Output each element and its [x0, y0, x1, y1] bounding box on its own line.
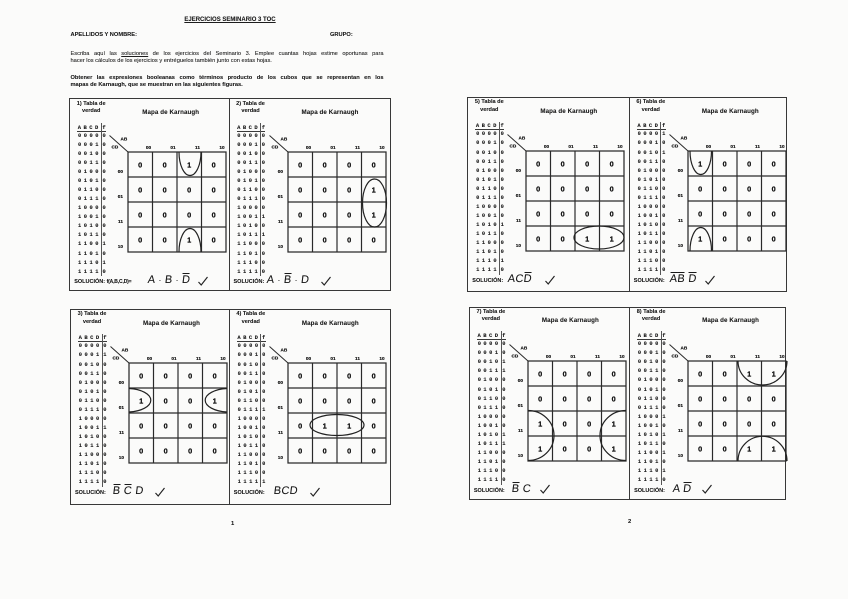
svg-text:01: 01 — [119, 405, 125, 410]
svg-text:11: 11 — [593, 144, 598, 149]
svg-text:01: 01 — [516, 193, 522, 198]
svg-text:11: 11 — [196, 356, 201, 361]
svg-text:0: 0 — [561, 234, 565, 243]
svg-text:10: 10 — [278, 455, 284, 460]
svg-text:0: 0 — [536, 234, 540, 243]
svg-text:00: 00 — [706, 354, 712, 359]
svg-text:0: 0 — [322, 236, 326, 245]
svg-text:0: 0 — [563, 444, 567, 453]
svg-text:1: 1 — [772, 369, 776, 378]
svg-text:0: 0 — [138, 236, 142, 245]
svg-text:0: 0 — [298, 446, 302, 455]
svg-text:0: 0 — [213, 371, 217, 380]
svg-text:CD: CD — [511, 353, 518, 358]
svg-text:1: 1 — [747, 369, 751, 378]
svg-text:0: 0 — [322, 211, 326, 220]
svg-text:0: 0 — [536, 159, 540, 168]
svg-text:01: 01 — [118, 194, 124, 199]
svg-text:11: 11 — [278, 430, 283, 435]
svg-text:0: 0 — [610, 209, 614, 218]
svg-text:10: 10 — [779, 354, 785, 359]
svg-text:00: 00 — [518, 378, 524, 383]
svg-text:01: 01 — [330, 145, 336, 150]
svg-text:AB: AB — [520, 345, 527, 350]
svg-text:0: 0 — [371, 446, 375, 455]
svg-text:11: 11 — [678, 428, 683, 433]
svg-text:01: 01 — [678, 403, 684, 408]
svg-text:CD: CD — [112, 145, 119, 150]
svg-text:0: 0 — [139, 371, 143, 380]
svg-text:1: 1 — [772, 444, 776, 453]
svg-text:0: 0 — [538, 394, 542, 403]
svg-text:0: 0 — [371, 396, 375, 405]
svg-text:0: 0 — [164, 371, 168, 380]
svg-text:00: 00 — [678, 168, 684, 173]
svg-text:00: 00 — [277, 169, 283, 174]
svg-text:10: 10 — [518, 453, 524, 458]
svg-text:0: 0 — [585, 159, 589, 168]
svg-text:0: 0 — [561, 209, 565, 218]
svg-text:0: 0 — [163, 211, 167, 220]
svg-text:0: 0 — [188, 396, 192, 405]
svg-text:1: 1 — [747, 444, 751, 453]
svg-text:CD: CD — [672, 353, 679, 358]
svg-text:11: 11 — [118, 219, 123, 224]
svg-text:0: 0 — [610, 184, 614, 193]
svg-text:0: 0 — [587, 444, 591, 453]
svg-text:0: 0 — [347, 371, 351, 380]
svg-text:0: 0 — [722, 184, 726, 193]
svg-text:1: 1 — [347, 421, 351, 430]
svg-text:CD: CD — [113, 356, 120, 361]
svg-text:0: 0 — [347, 396, 351, 405]
svg-text:CD: CD — [271, 356, 278, 361]
svg-text:0: 0 — [139, 421, 143, 430]
svg-text:11: 11 — [678, 218, 683, 223]
svg-text:0: 0 — [536, 184, 540, 193]
svg-text:0: 0 — [612, 394, 616, 403]
svg-text:0: 0 — [772, 419, 776, 428]
svg-text:0: 0 — [371, 421, 375, 430]
svg-text:11: 11 — [119, 430, 124, 435]
svg-text:00: 00 — [544, 144, 550, 149]
svg-text:0: 0 — [538, 369, 542, 378]
svg-text:0: 0 — [298, 236, 302, 245]
svg-text:00: 00 — [119, 380, 125, 385]
svg-text:0: 0 — [347, 186, 351, 195]
svg-text:01: 01 — [730, 144, 736, 149]
svg-text:01: 01 — [330, 356, 336, 361]
svg-text:1: 1 — [139, 396, 143, 405]
svg-text:0: 0 — [188, 421, 192, 430]
svg-text:01: 01 — [278, 405, 284, 410]
svg-text:0: 0 — [771, 209, 775, 218]
svg-text:0: 0 — [747, 184, 751, 193]
svg-text:1: 1 — [585, 234, 589, 243]
svg-text:1: 1 — [698, 234, 702, 243]
svg-text:10: 10 — [379, 145, 385, 150]
svg-text:0: 0 — [772, 394, 776, 403]
svg-text:0: 0 — [322, 396, 326, 405]
svg-text:0: 0 — [347, 211, 351, 220]
svg-text:0: 0 — [698, 444, 702, 453]
svg-text:11: 11 — [355, 145, 360, 150]
svg-text:10: 10 — [277, 244, 283, 249]
svg-text:0: 0 — [322, 446, 326, 455]
svg-text:0: 0 — [610, 159, 614, 168]
svg-text:0: 0 — [138, 211, 142, 220]
svg-text:0: 0 — [212, 236, 216, 245]
svg-text:11: 11 — [516, 218, 521, 223]
svg-text:0: 0 — [164, 421, 168, 430]
svg-text:0: 0 — [298, 211, 302, 220]
svg-text:1: 1 — [187, 161, 191, 170]
svg-text:0: 0 — [585, 184, 589, 193]
svg-text:0: 0 — [747, 209, 751, 218]
svg-text:0: 0 — [698, 369, 702, 378]
svg-text:0: 0 — [747, 159, 751, 168]
svg-text:01: 01 — [569, 144, 575, 149]
svg-text:11: 11 — [595, 354, 600, 359]
svg-text:1: 1 — [612, 444, 616, 453]
svg-text:0: 0 — [723, 394, 727, 403]
svg-text:0: 0 — [563, 394, 567, 403]
svg-text:00: 00 — [516, 168, 522, 173]
svg-text:AB: AB — [280, 137, 287, 142]
svg-text:AB: AB — [280, 348, 287, 353]
svg-text:11: 11 — [755, 144, 760, 149]
svg-text:0: 0 — [164, 396, 168, 405]
svg-text:AB: AB — [680, 136, 687, 141]
svg-text:0: 0 — [723, 444, 727, 453]
svg-text:10: 10 — [220, 356, 226, 361]
svg-text:1: 1 — [371, 186, 375, 195]
svg-text:0: 0 — [536, 209, 540, 218]
svg-text:0: 0 — [347, 236, 351, 245]
svg-text:0: 0 — [698, 394, 702, 403]
svg-text:10: 10 — [678, 453, 684, 458]
svg-text:0: 0 — [163, 236, 167, 245]
svg-text:11: 11 — [195, 145, 200, 150]
svg-text:00: 00 — [706, 144, 712, 149]
svg-text:0: 0 — [771, 234, 775, 243]
svg-text:AB: AB — [681, 345, 688, 350]
svg-text:0: 0 — [771, 184, 775, 193]
svg-text:11: 11 — [355, 356, 360, 361]
svg-text:0: 0 — [322, 161, 326, 170]
svg-text:0: 0 — [561, 184, 565, 193]
svg-text:AB: AB — [519, 136, 526, 141]
svg-text:0: 0 — [563, 369, 567, 378]
svg-text:11: 11 — [755, 354, 760, 359]
svg-text:11: 11 — [278, 219, 283, 224]
svg-text:00: 00 — [306, 356, 312, 361]
svg-text:1: 1 — [322, 421, 326, 430]
svg-text:0: 0 — [298, 421, 302, 430]
svg-text:0: 0 — [698, 184, 702, 193]
svg-text:0: 0 — [138, 161, 142, 170]
svg-text:10: 10 — [779, 144, 785, 149]
svg-text:0: 0 — [563, 419, 567, 428]
svg-text:10: 10 — [379, 356, 385, 361]
svg-text:0: 0 — [298, 396, 302, 405]
svg-text:01: 01 — [171, 145, 177, 150]
svg-text:1: 1 — [371, 211, 375, 220]
svg-text:10: 10 — [119, 455, 125, 460]
svg-text:0: 0 — [212, 211, 216, 220]
svg-text:0: 0 — [213, 421, 217, 430]
svg-text:0: 0 — [722, 209, 726, 218]
svg-text:0: 0 — [322, 371, 326, 380]
svg-text:00: 00 — [146, 145, 152, 150]
svg-text:0: 0 — [212, 161, 216, 170]
svg-text:0: 0 — [164, 446, 168, 455]
svg-text:0: 0 — [298, 371, 302, 380]
svg-text:0: 0 — [371, 236, 375, 245]
svg-text:0: 0 — [187, 186, 191, 195]
svg-text:0: 0 — [163, 186, 167, 195]
svg-text:1: 1 — [538, 444, 542, 453]
svg-text:0: 0 — [587, 369, 591, 378]
svg-text:00: 00 — [305, 145, 311, 150]
svg-text:0: 0 — [298, 161, 302, 170]
svg-text:0: 0 — [747, 419, 751, 428]
svg-text:0: 0 — [139, 446, 143, 455]
svg-text:AB: AB — [121, 137, 128, 142]
svg-text:10: 10 — [220, 145, 226, 150]
svg-text:0: 0 — [163, 161, 167, 170]
svg-text:0: 0 — [722, 234, 726, 243]
svg-text:0: 0 — [138, 186, 142, 195]
svg-text:00: 00 — [546, 354, 552, 359]
svg-text:CD: CD — [510, 144, 517, 149]
svg-text:11: 11 — [518, 428, 523, 433]
svg-text:0: 0 — [723, 369, 727, 378]
svg-text:10: 10 — [619, 354, 625, 359]
svg-text:0: 0 — [213, 446, 217, 455]
svg-text:1: 1 — [187, 236, 191, 245]
svg-text:0: 0 — [698, 209, 702, 218]
svg-text:01: 01 — [277, 194, 283, 199]
svg-text:0: 0 — [298, 186, 302, 195]
svg-text:00: 00 — [278, 380, 284, 385]
svg-text:0: 0 — [188, 446, 192, 455]
svg-text:1: 1 — [538, 419, 542, 428]
svg-text:01: 01 — [518, 403, 524, 408]
svg-text:10: 10 — [618, 144, 624, 149]
svg-text:0: 0 — [747, 234, 751, 243]
svg-text:0: 0 — [347, 446, 351, 455]
svg-text:CD: CD — [671, 144, 678, 149]
svg-text:0: 0 — [187, 211, 191, 220]
svg-text:0: 0 — [722, 159, 726, 168]
svg-text:10: 10 — [516, 243, 522, 248]
svg-text:00: 00 — [118, 169, 124, 174]
svg-text:0: 0 — [561, 159, 565, 168]
svg-text:0: 0 — [371, 161, 375, 170]
svg-text:00: 00 — [678, 378, 684, 383]
svg-text:0: 0 — [371, 371, 375, 380]
svg-text:0: 0 — [698, 419, 702, 428]
svg-text:0: 0 — [771, 159, 775, 168]
svg-text:1: 1 — [610, 234, 614, 243]
svg-text:1: 1 — [213, 396, 217, 405]
svg-text:CD: CD — [271, 145, 278, 150]
svg-text:0: 0 — [347, 161, 351, 170]
svg-text:0: 0 — [612, 369, 616, 378]
svg-text:0: 0 — [723, 419, 727, 428]
svg-text:0: 0 — [585, 209, 589, 218]
svg-text:0: 0 — [747, 394, 751, 403]
svg-text:10: 10 — [118, 244, 124, 249]
svg-text:0: 0 — [188, 371, 192, 380]
svg-text:01: 01 — [730, 354, 736, 359]
svg-text:01: 01 — [570, 354, 576, 359]
svg-text:0: 0 — [322, 186, 326, 195]
svg-text:01: 01 — [678, 193, 684, 198]
svg-text:01: 01 — [171, 356, 177, 361]
svg-text:AB: AB — [122, 348, 129, 353]
svg-text:0: 0 — [212, 186, 216, 195]
svg-text:10: 10 — [678, 243, 684, 248]
svg-text:0: 0 — [587, 419, 591, 428]
svg-text:0: 0 — [587, 394, 591, 403]
svg-text:1: 1 — [612, 419, 616, 428]
svg-text:1: 1 — [698, 159, 702, 168]
svg-text:00: 00 — [147, 356, 153, 361]
